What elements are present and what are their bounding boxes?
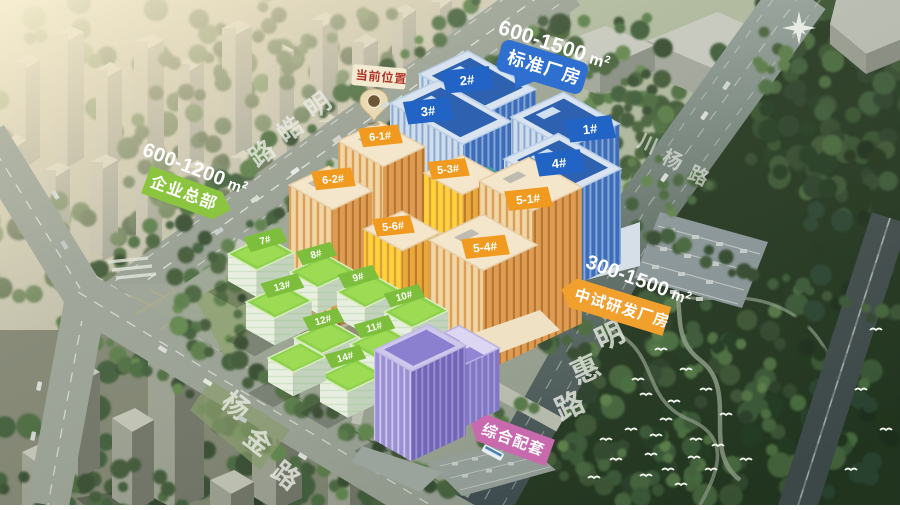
svg-text:6-2#: 6-2#: [322, 173, 345, 187]
svg-text:6-1#: 6-1#: [369, 130, 392, 144]
svg-text:1#: 1#: [582, 121, 599, 138]
svg-text:5-1#: 5-1#: [515, 191, 541, 207]
svg-text:2#: 2#: [459, 72, 476, 89]
svg-text:5-6#: 5-6#: [382, 220, 405, 234]
svg-text:3#: 3#: [420, 103, 437, 120]
svg-text:5-4#: 5-4#: [472, 239, 498, 255]
svg-text:5-3#: 5-3#: [437, 163, 460, 177]
svg-text:4#: 4#: [551, 155, 568, 172]
